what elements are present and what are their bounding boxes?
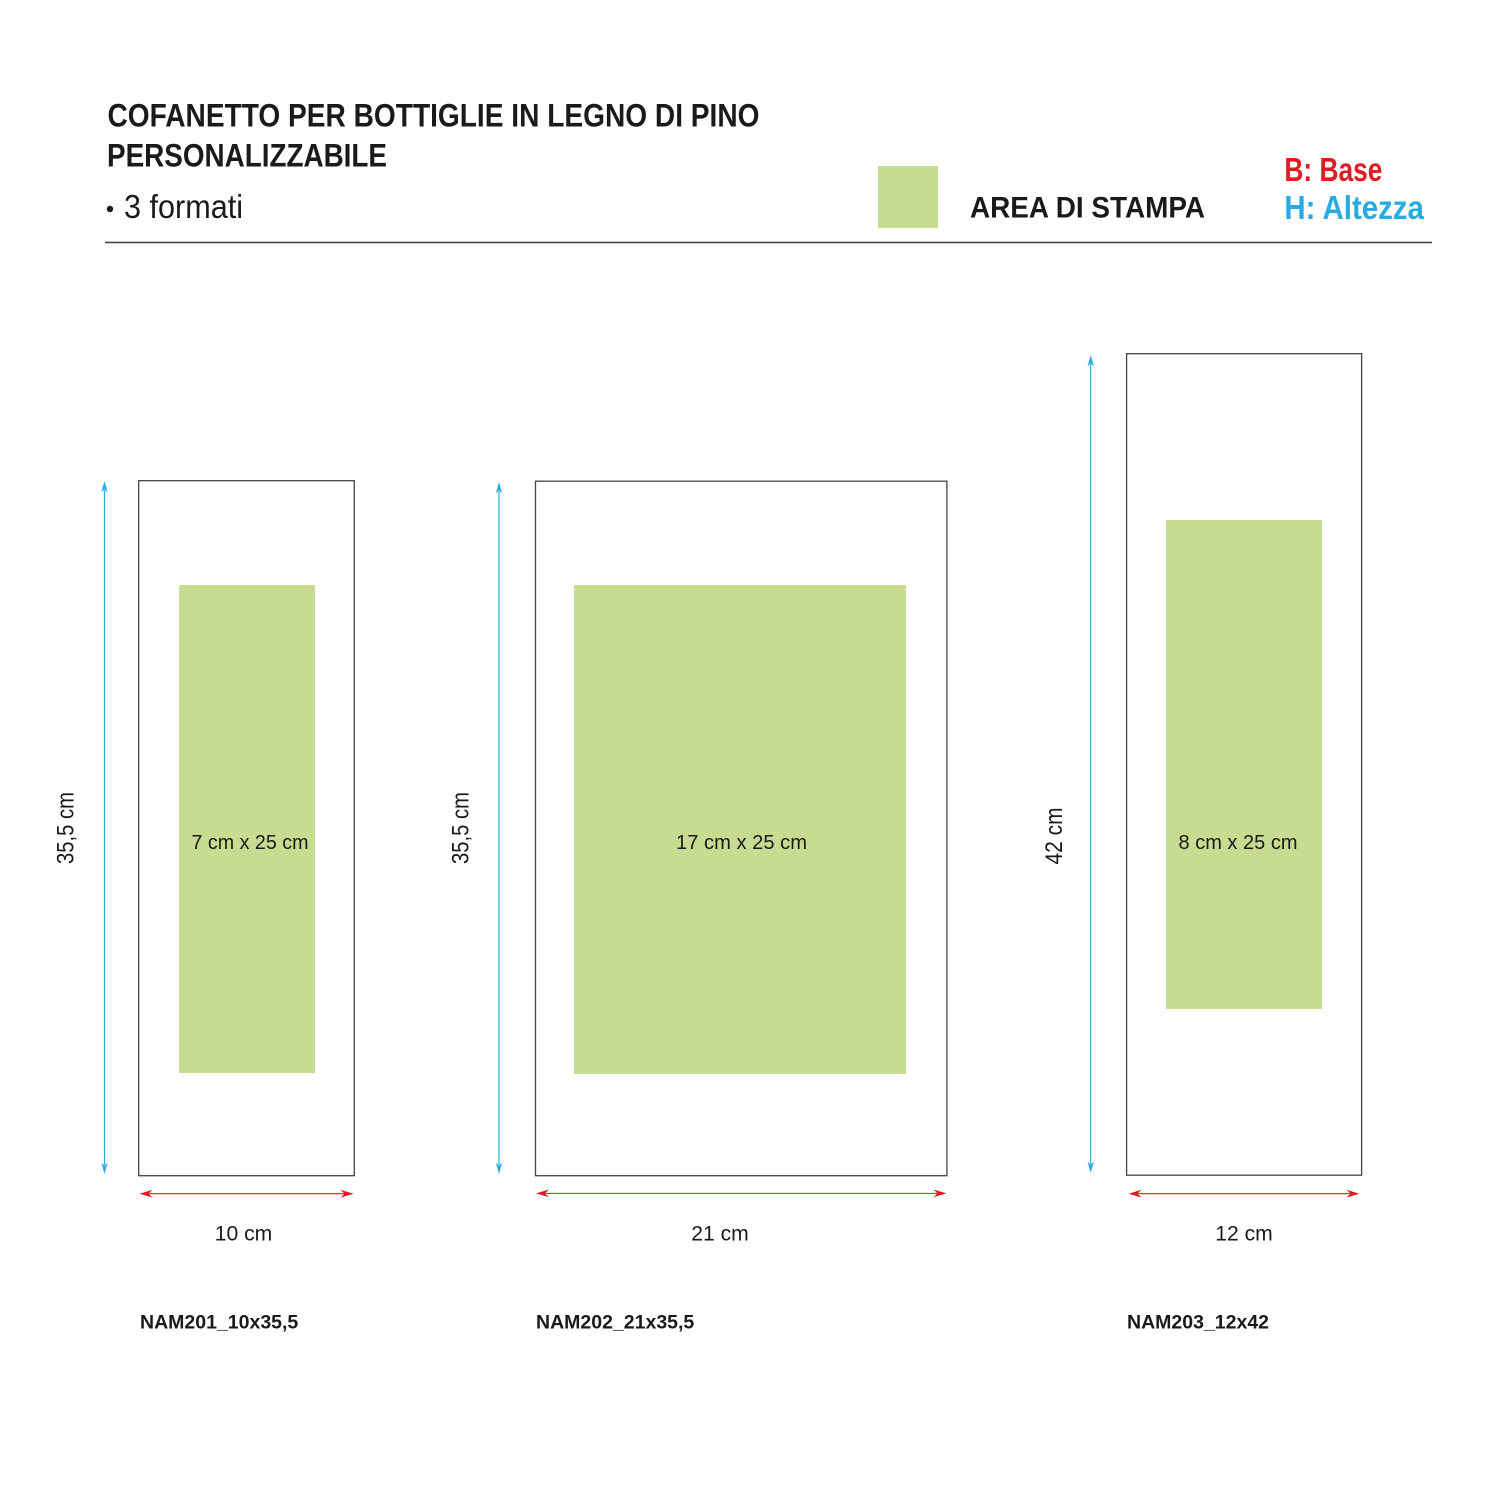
svg-text:21 cm: 21 cm xyxy=(691,1222,749,1246)
svg-text:NAM203_12x42: NAM203_12x42 xyxy=(1127,1312,1269,1334)
svg-text:17 cm x 25 cm: 17 cm x 25 cm xyxy=(676,831,807,854)
svg-text:H: Altezza: H: Altezza xyxy=(1284,189,1424,226)
svg-text:B: Base: B: Base xyxy=(1284,151,1382,188)
svg-text:42 cm: 42 cm xyxy=(1041,808,1068,865)
svg-text:35,5 cm: 35,5 cm xyxy=(447,792,474,864)
svg-text:AREA DI STAMPA: AREA DI STAMPA xyxy=(970,191,1205,224)
svg-text:PERSONALIZZABILE: PERSONALIZZABILE xyxy=(107,137,387,173)
svg-text:NAM202_21x35,5: NAM202_21x35,5 xyxy=(536,1312,694,1334)
svg-text:12 cm: 12 cm xyxy=(1215,1222,1273,1246)
svg-text:3 formati: 3 formati xyxy=(124,188,243,225)
svg-text:10 cm: 10 cm xyxy=(215,1222,273,1246)
svg-text:NAM201_10x35,5: NAM201_10x35,5 xyxy=(140,1312,298,1334)
svg-text:8 cm x 25 cm: 8 cm x 25 cm xyxy=(1179,831,1298,854)
svg-text:35,5 cm: 35,5 cm xyxy=(53,792,80,864)
svg-text:7 cm x 25 cm: 7 cm x 25 cm xyxy=(192,831,309,854)
svg-text:COFANETTO PER BOTTIGLIE IN LEG: COFANETTO PER BOTTIGLIE IN LEGNO DI PINO xyxy=(108,98,760,134)
